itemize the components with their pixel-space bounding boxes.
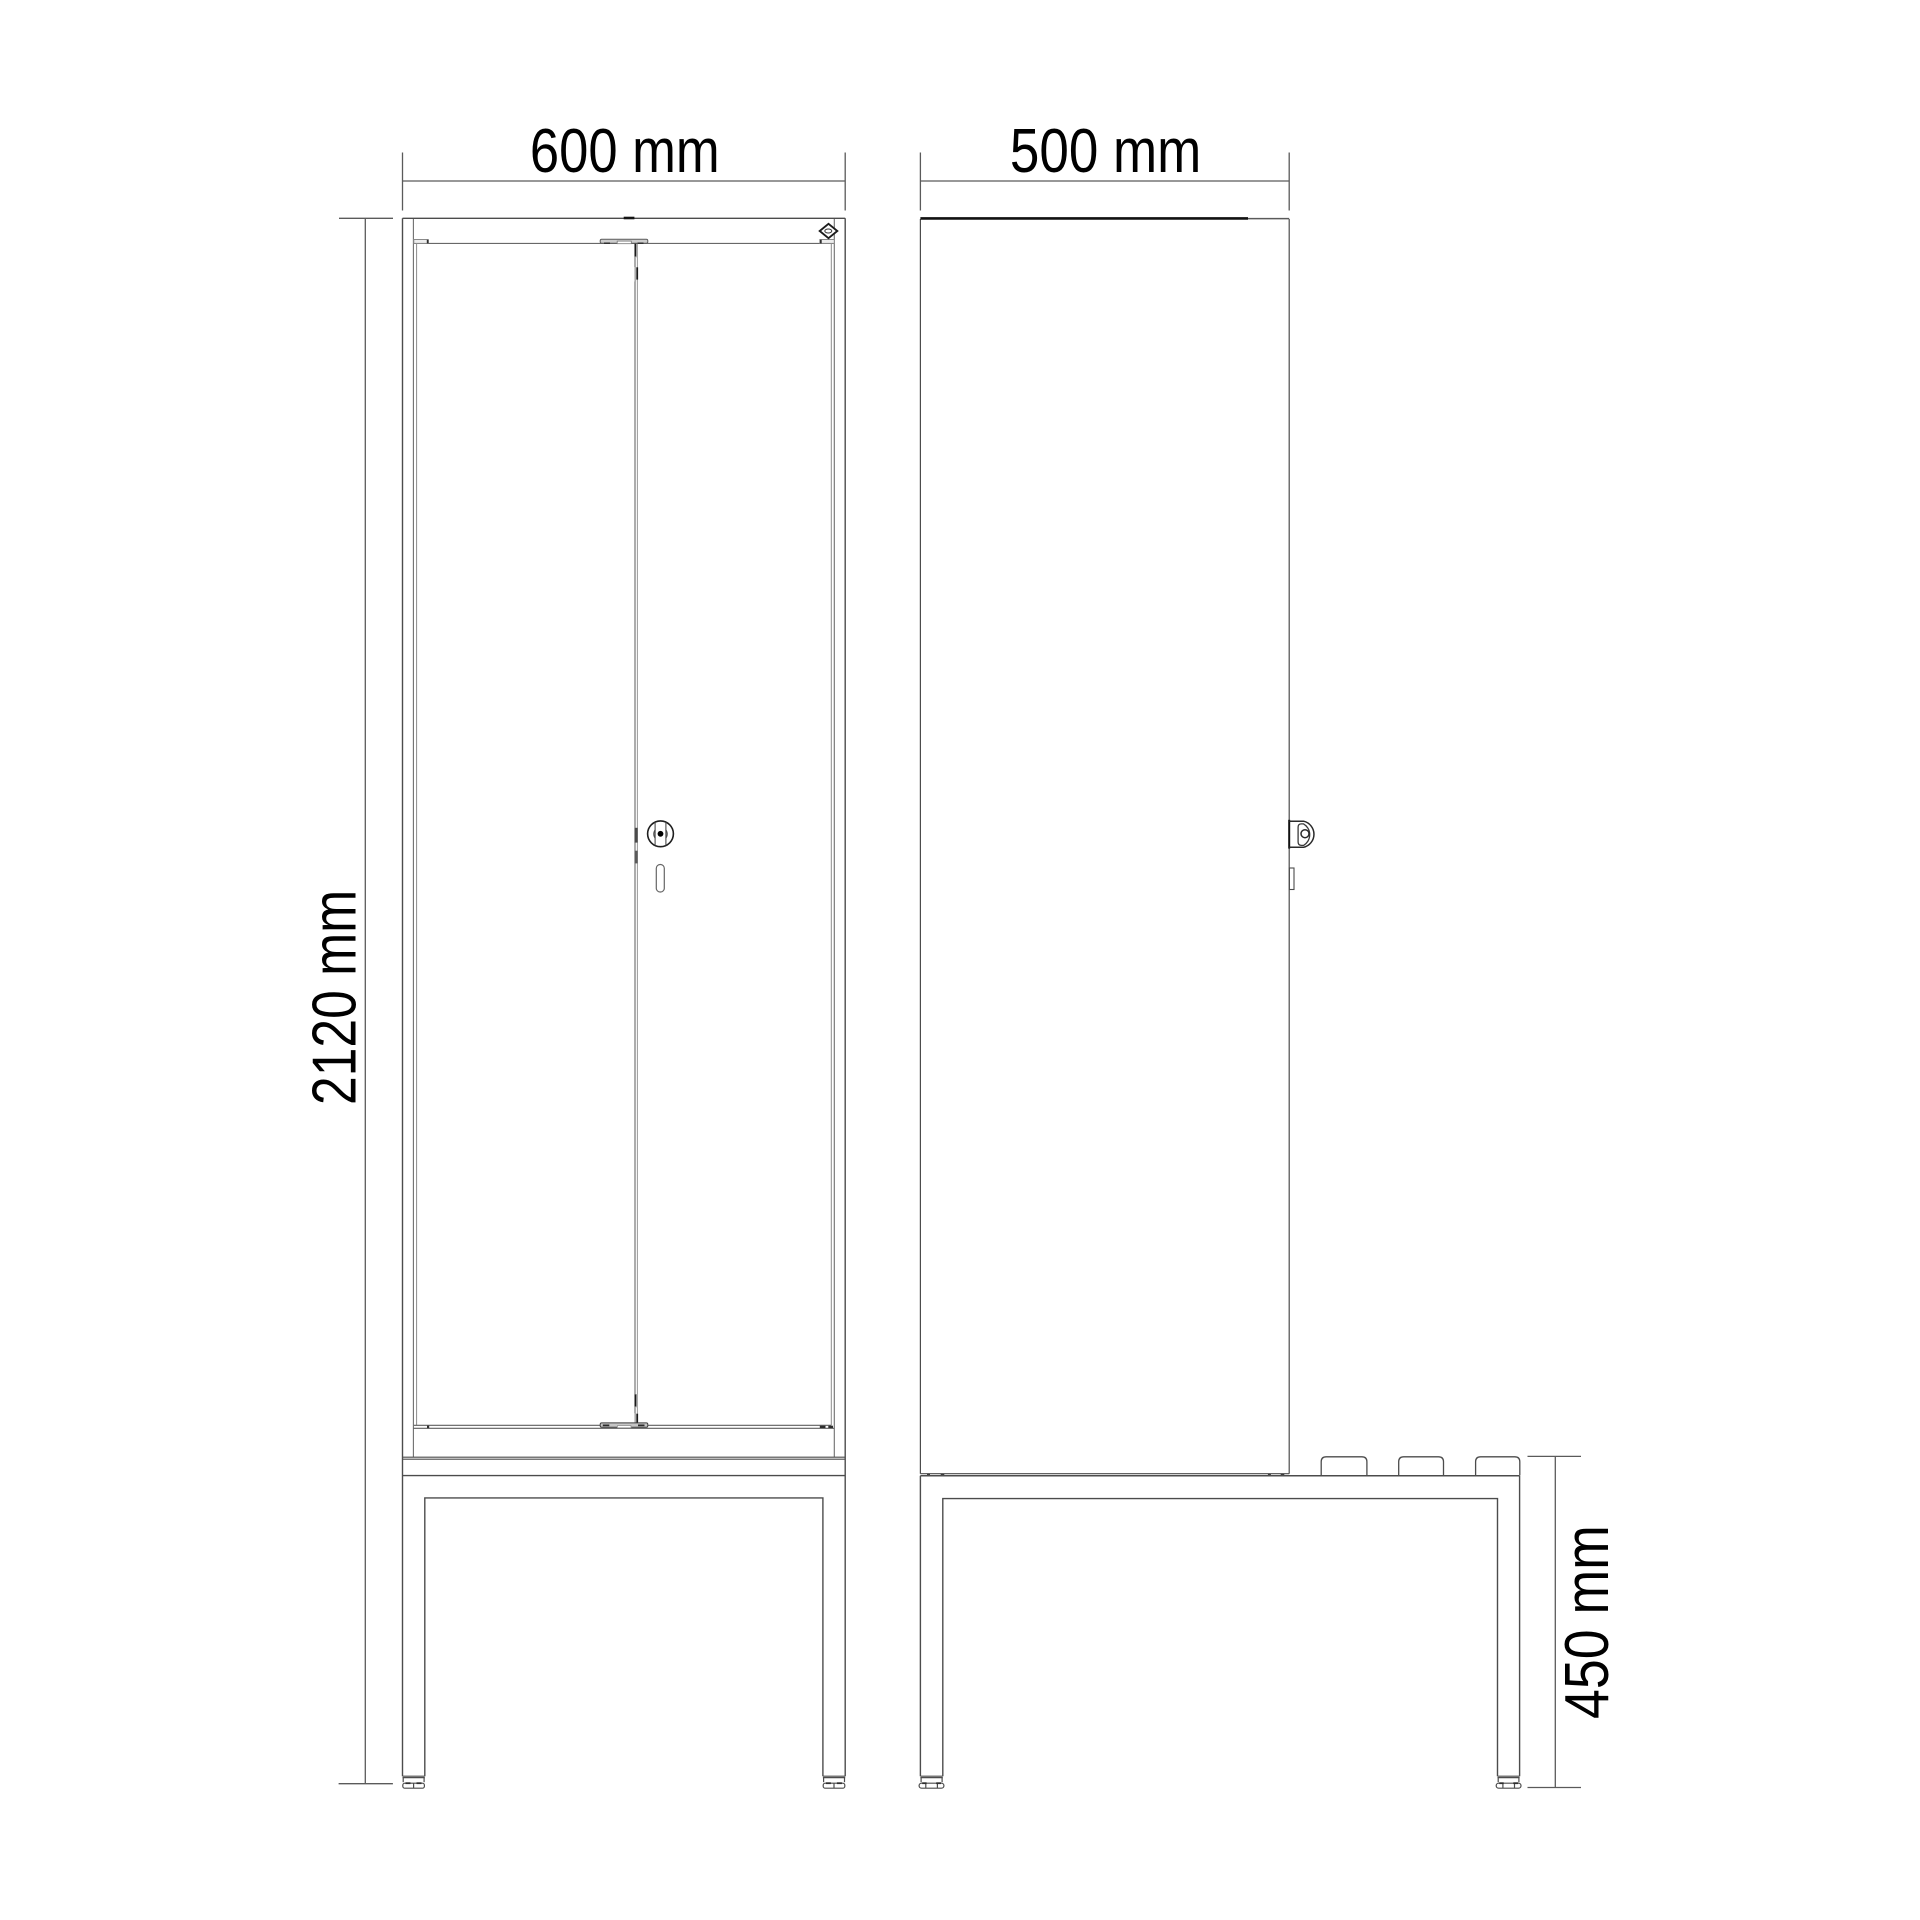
svg-text:2120 mm: 2120 mm xyxy=(301,890,370,1105)
svg-text:450 mm: 450 mm xyxy=(1553,1525,1622,1719)
svg-text:500 mm: 500 mm xyxy=(1010,117,1201,186)
svg-text:600 mm: 600 mm xyxy=(530,117,720,186)
